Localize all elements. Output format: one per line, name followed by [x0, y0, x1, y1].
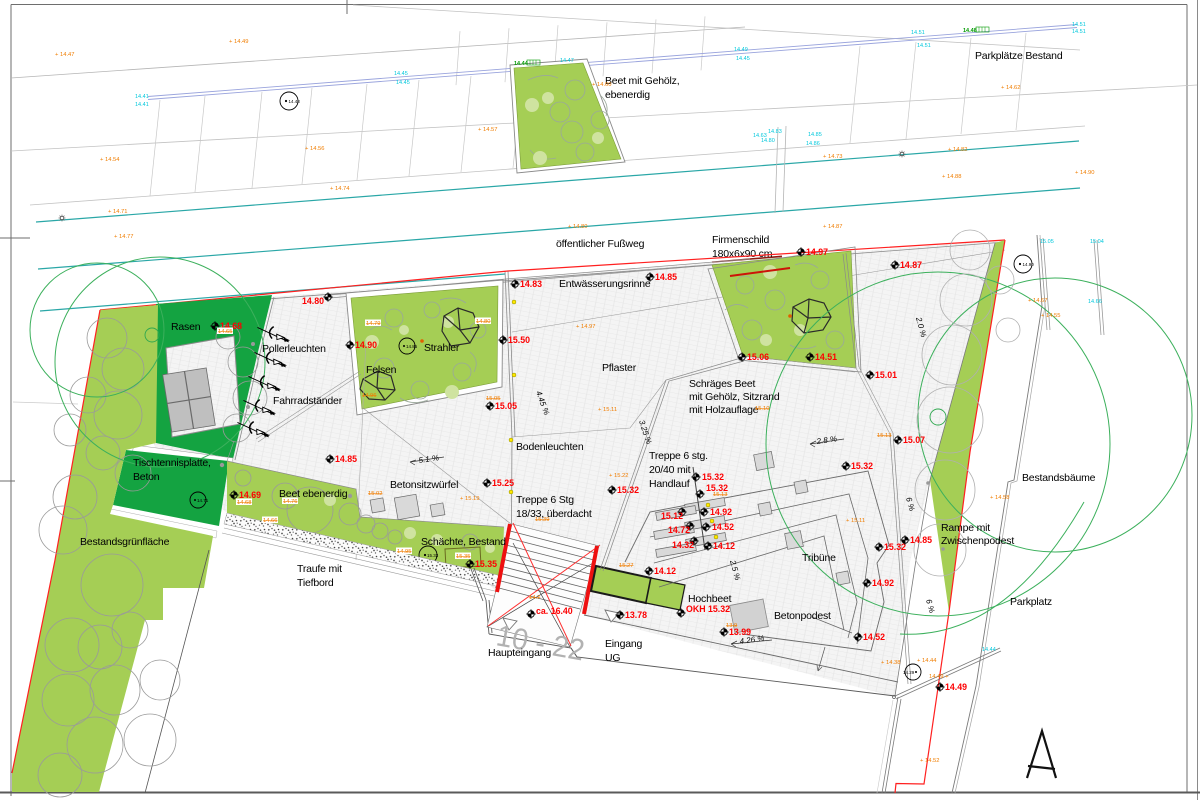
svg-text:15.33: 15.33 — [427, 553, 439, 558]
svg-text:+ 15.19: + 15.19 — [460, 496, 480, 502]
svg-text:14.44: 14.44 — [514, 61, 529, 67]
svg-text:14.85: 14.85 — [406, 344, 418, 349]
svg-text:14.80: 14.80 — [476, 319, 491, 325]
svg-text:15.50: 15.50 — [508, 335, 530, 345]
svg-text:14.45: 14.45 — [736, 56, 750, 62]
svg-text:14.92: 14.92 — [710, 507, 732, 517]
svg-text:14.47: 14.47 — [560, 58, 574, 64]
svg-text:+ 14.87: + 14.87 — [823, 224, 843, 230]
svg-text:14.90: 14.90 — [355, 340, 377, 350]
svg-text:14.79: 14.79 — [366, 321, 381, 327]
svg-text:14.51: 14.51 — [815, 352, 837, 362]
svg-text:14.85: 14.85 — [335, 454, 357, 464]
svg-text:Beton: Beton — [133, 471, 160, 483]
svg-text:14.51: 14.51 — [917, 43, 931, 49]
svg-text:ca. 16.40: ca. 16.40 — [536, 606, 573, 616]
svg-text:Bestandsbäume: Bestandsbäume — [1022, 472, 1096, 484]
svg-text:15.10: 15.10 — [755, 406, 770, 412]
svg-text:Strahler: Strahler — [424, 342, 460, 354]
svg-text:15.06: 15.06 — [747, 352, 769, 362]
svg-text:+ 14.74: + 14.74 — [330, 186, 350, 192]
svg-text:14.45: 14.45 — [396, 80, 410, 86]
svg-text:15.02: 15.02 — [368, 491, 383, 497]
svg-text:14.29: 14.29 — [903, 670, 915, 675]
svg-text:Beet mit Gehölz,: Beet mit Gehölz, — [605, 75, 679, 87]
svg-text:15.32: 15.32 — [884, 542, 906, 552]
svg-text:14.85: 14.85 — [808, 132, 822, 138]
svg-text:14.45: 14.45 — [394, 71, 408, 77]
svg-text:Bestandsgrünfläche: Bestandsgrünfläche — [80, 536, 170, 548]
svg-text:+ 14.44: + 14.44 — [917, 658, 937, 664]
svg-text:15.07: 15.07 — [903, 435, 925, 445]
svg-text:Pflaster: Pflaster — [602, 362, 637, 374]
svg-text:15.27: 15.27 — [619, 563, 634, 569]
svg-text:15.32: 15.32 — [617, 485, 639, 495]
svg-text:+ 14.47: + 14.47 — [55, 52, 75, 58]
svg-text:mit Gehölz, Sitzrand: mit Gehölz, Sitzrand — [689, 391, 780, 403]
svg-text:+ 14.82: + 14.82 — [948, 147, 968, 153]
svg-text:14.85: 14.85 — [910, 535, 932, 545]
svg-text:+ 15.22: + 15.22 — [609, 473, 629, 479]
svg-text:15.25: 15.25 — [492, 478, 514, 488]
svg-text:+ 14.88: + 14.88 — [942, 174, 962, 180]
svg-text:15.35: 15.35 — [475, 559, 497, 569]
svg-text:14.44: 14.44 — [982, 647, 996, 653]
svg-text:+ 14.67: + 14.67 — [1028, 298, 1048, 304]
svg-text:15.04: 15.04 — [1090, 239, 1104, 245]
svg-text:14.66: 14.66 — [1088, 299, 1102, 305]
svg-text:20/40 mit: 20/40 mit — [649, 464, 691, 476]
svg-text:+ 14.52: + 14.52 — [920, 758, 940, 764]
svg-text:+ 14.97: + 14.97 — [576, 324, 596, 330]
svg-text:+ 14.56: + 14.56 — [305, 146, 325, 152]
svg-text:+ 15.11: + 15.11 — [598, 407, 617, 413]
svg-text:14.96: 14.96 — [362, 393, 377, 399]
svg-text:15.12: 15.12 — [661, 511, 683, 521]
svg-text:öffentlicher Fußweg: öffentlicher Fußweg — [556, 238, 645, 250]
svg-text:14.76: 14.76 — [283, 499, 298, 505]
svg-text:+ 14.57: + 14.57 — [478, 127, 498, 133]
svg-text:+ 14.77: + 14.77 — [114, 234, 134, 240]
svg-text:14.41: 14.41 — [135, 102, 149, 108]
svg-text:15.13: 15.13 — [877, 433, 892, 439]
svg-text:13.78: 13.78 — [625, 610, 647, 620]
svg-text:14.12: 14.12 — [713, 541, 735, 551]
svg-text:14.68: 14.68 — [237, 500, 252, 506]
svg-text:OKH 15.32: OKH 15.32 — [686, 604, 730, 614]
svg-text:+ 14.73: + 14.73 — [823, 154, 843, 160]
svg-text:+ 14.80: + 14.80 — [568, 224, 588, 230]
svg-text:Zwischenpodest: Zwischenpodest — [941, 535, 1014, 547]
svg-text:15.13: 15.13 — [713, 492, 728, 498]
svg-text:+ 14.58: + 14.58 — [990, 495, 1010, 501]
svg-text:14.92: 14.92 — [872, 578, 894, 588]
svg-text:14.48: 14.48 — [963, 28, 977, 34]
svg-text:15.32: 15.32 — [851, 461, 873, 471]
svg-text:+ 14.55: + 14.55 — [1041, 313, 1061, 319]
svg-text:Parkplätze Bestand: Parkplätze Bestand — [975, 50, 1063, 62]
svg-text:Schräges Beet: Schräges Beet — [689, 378, 756, 390]
svg-text:+ 14.54: + 14.54 — [100, 157, 120, 163]
svg-text:14.71: 14.71 — [197, 498, 209, 503]
svg-text:14.95: 14.95 — [397, 549, 412, 555]
svg-text:Treppe 6 Stg: Treppe 6 Stg — [516, 494, 574, 506]
svg-text:15.35: 15.35 — [456, 554, 471, 560]
svg-text:Rasen: Rasen — [171, 321, 201, 333]
svg-text:14.49: 14.49 — [945, 682, 967, 692]
svg-text:+ 14.49: + 14.49 — [229, 39, 249, 45]
svg-text:Parkplatz: Parkplatz — [1010, 596, 1052, 608]
svg-text:15.05: 15.05 — [486, 396, 501, 402]
svg-text:Treppe 6 stg.: Treppe 6 stg. — [649, 450, 708, 462]
svg-text:15.01: 15.01 — [875, 370, 897, 380]
svg-text:18/33, überdacht: 18/33, überdacht — [516, 508, 592, 520]
svg-text:14.48: 14.48 — [289, 99, 301, 104]
svg-text:14.80: 14.80 — [302, 296, 324, 306]
svg-text:Pollerleuchten: Pollerleuchten — [262, 343, 326, 355]
svg-text:14.49: 14.49 — [734, 47, 748, 53]
svg-text:+ 15.11: + 15.11 — [846, 518, 865, 524]
svg-text:mit Holzauflage: mit Holzauflage — [689, 404, 759, 416]
svg-text:15.32: 15.32 — [702, 472, 724, 482]
svg-text:14.12: 14.12 — [654, 566, 676, 576]
svg-text:14.83: 14.83 — [768, 129, 782, 135]
svg-text:Firmenschild: Firmenschild — [712, 234, 769, 246]
svg-text:14.7: 14.7 — [529, 595, 540, 601]
svg-text:14.32: 14.32 — [672, 540, 694, 550]
svg-text:15.05: 15.05 — [495, 401, 517, 411]
svg-text:Handlauf: Handlauf — [649, 478, 690, 490]
svg-text:+ 14.38: + 14.38 — [881, 660, 901, 666]
svg-text:+ 14.90: + 14.90 — [1075, 170, 1095, 176]
svg-text:Rampe mit: Rampe mit — [941, 522, 990, 534]
svg-text:Entwässerungsrinne: Entwässerungsrinne — [559, 278, 651, 290]
svg-text:UG: UG — [605, 652, 620, 664]
svg-text:+ 14.71: + 14.71 — [108, 209, 128, 215]
svg-text:Tribüne: Tribüne — [802, 552, 836, 564]
svg-text:14.63: 14.63 — [753, 133, 767, 139]
svg-text:14.66: 14.66 — [263, 518, 278, 524]
svg-text:Eingang: Eingang — [605, 638, 642, 650]
svg-text:14.51: 14.51 — [1072, 22, 1086, 28]
svg-text:Tiefbord: Tiefbord — [297, 577, 334, 589]
svg-text:Betonsitzwürfel: Betonsitzwürfel — [390, 479, 458, 491]
svg-text:14.97: 14.97 — [806, 247, 828, 257]
svg-text:14.90: 14.90 — [1023, 262, 1035, 267]
svg-text:14.41: 14.41 — [135, 94, 149, 100]
svg-text:ebenerdig: ebenerdig — [605, 89, 650, 101]
svg-text:14.87: 14.87 — [900, 260, 922, 270]
svg-text:+ 14.62: + 14.62 — [1001, 85, 1021, 91]
svg-text:14.72: 14.72 — [668, 525, 690, 535]
svg-text:14.52: 14.52 — [712, 522, 734, 532]
svg-text:14.86: 14.86 — [806, 141, 820, 147]
svg-text:14.65: 14.65 — [218, 329, 233, 335]
svg-text:13.9: 13.9 — [726, 623, 737, 629]
svg-text:Schächte, Bestand: Schächte, Bestand — [421, 536, 506, 548]
svg-text:14.85: 14.85 — [655, 272, 677, 282]
svg-text:Felsen: Felsen — [366, 364, 397, 376]
svg-text:Haupteingang: Haupteingang — [488, 647, 551, 659]
svg-text:Traufe mit: Traufe mit — [297, 563, 342, 575]
svg-text:Fahrradständer: Fahrradständer — [273, 395, 343, 407]
svg-text:14.49 +: 14.49 + — [929, 674, 949, 680]
svg-text:14.51: 14.51 — [911, 30, 925, 36]
svg-text:14.52: 14.52 — [863, 632, 885, 642]
svg-text:15.39: 15.39 — [535, 517, 550, 523]
svg-text:14.51: 14.51 — [1072, 29, 1086, 35]
svg-text:+ 14.60: + 14.60 — [592, 82, 612, 88]
svg-text:15.05: 15.05 — [1040, 239, 1054, 245]
svg-text:Tischtennisplatte,: Tischtennisplatte, — [133, 457, 211, 469]
svg-text:Betonpodest: Betonpodest — [774, 610, 831, 622]
svg-text:14.83: 14.83 — [520, 279, 542, 289]
svg-text:Bodenleuchten: Bodenleuchten — [516, 441, 584, 453]
